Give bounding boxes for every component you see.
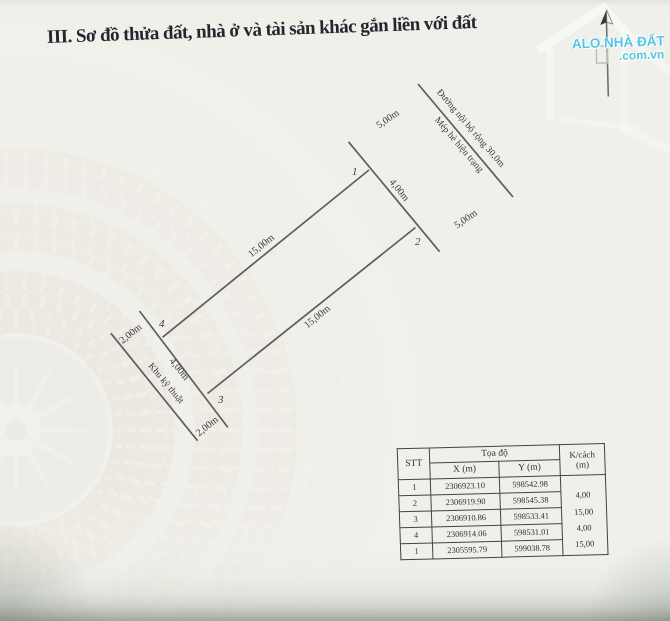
svg-text:4,00m: 4,00m xyxy=(387,177,412,204)
svg-text:15,00m: 15,00m xyxy=(246,232,277,260)
svg-text:2,00m: 2,00m xyxy=(118,322,145,347)
svg-text:4,00m: 4,00m xyxy=(167,356,192,383)
svg-text:4: 4 xyxy=(159,318,165,330)
svg-text:3: 3 xyxy=(217,394,224,406)
svg-text:2,00m: 2,00m xyxy=(194,414,221,439)
svg-text:15,00m: 15,00m xyxy=(302,303,333,331)
svg-text:5,00m: 5,00m xyxy=(375,108,402,132)
svg-text:5,00m: 5,00m xyxy=(453,208,480,232)
svg-text:1: 1 xyxy=(352,166,358,178)
svg-text:Mép hè hiện trạng: Mép hè hiện trạng xyxy=(432,116,485,175)
svg-text:2: 2 xyxy=(415,236,421,248)
